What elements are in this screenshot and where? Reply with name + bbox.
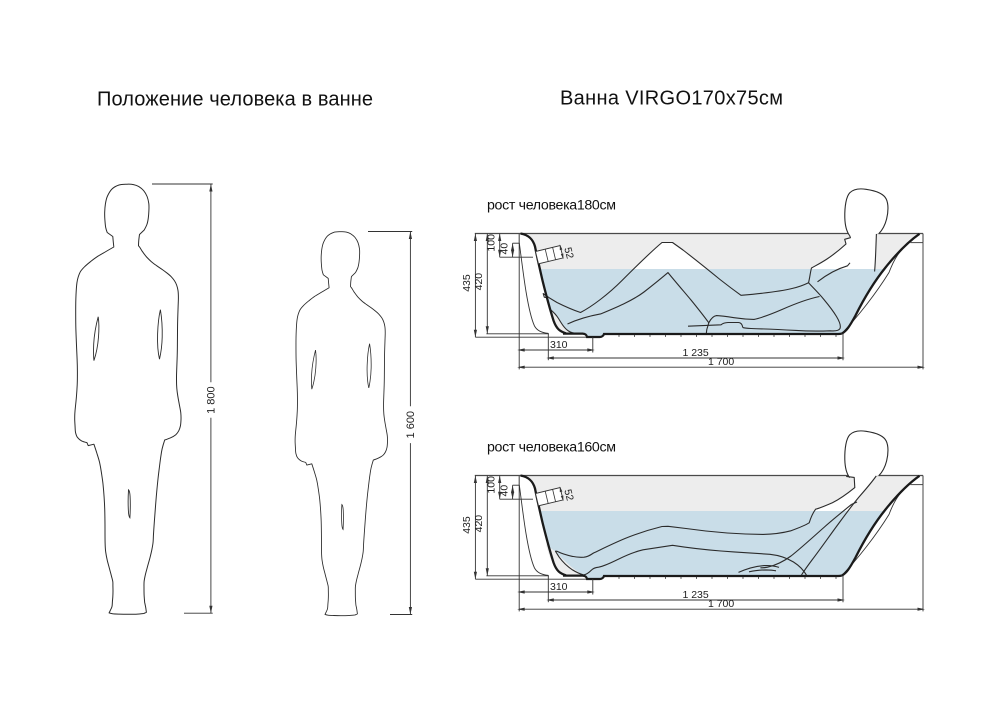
- svg-text:100: 100: [486, 476, 498, 494]
- svg-text:435: 435: [461, 274, 473, 292]
- svg-text:310: 310: [550, 581, 568, 593]
- svg-text:420: 420: [473, 273, 485, 291]
- svg-text:310: 310: [550, 339, 568, 351]
- svg-text:рост человека160см: рост человека160см: [487, 440, 616, 456]
- svg-text:1 700: 1 700: [708, 598, 734, 610]
- svg-text:рост человека180см: рост человека180см: [487, 198, 616, 214]
- svg-text:1 800: 1 800: [206, 386, 218, 414]
- svg-text:1 600: 1 600: [405, 411, 417, 439]
- svg-text:435: 435: [461, 516, 473, 534]
- svg-text:Положение человека в ванне: Положение человека в ванне: [97, 88, 373, 110]
- svg-text:Ванна VIRGO170x75см: Ванна VIRGO170x75см: [560, 88, 783, 110]
- svg-text:40: 40: [498, 485, 510, 497]
- svg-text:100: 100: [486, 234, 498, 252]
- svg-text:1 235: 1 235: [682, 347, 708, 359]
- svg-text:1 235: 1 235: [682, 589, 708, 601]
- svg-text:40: 40: [498, 243, 510, 255]
- svg-text:420: 420: [473, 515, 485, 533]
- svg-text:1 700: 1 700: [708, 356, 734, 368]
